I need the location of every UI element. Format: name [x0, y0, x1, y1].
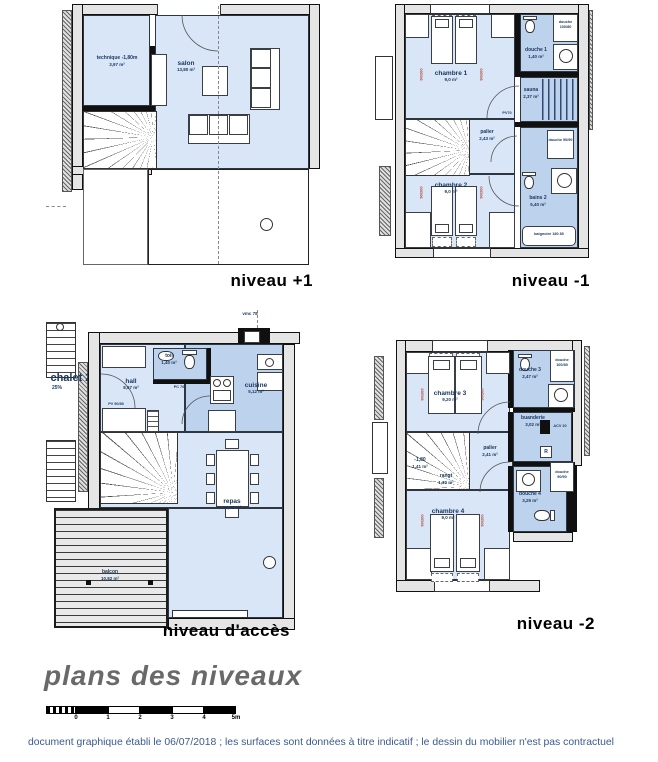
section-line [218, 6, 219, 264]
shelf [147, 410, 159, 432]
wc-bowl [525, 20, 535, 33]
room-label-cuisine: cuisine 5,12 m² [234, 382, 278, 395]
sheet-title: plans des niveaux [44, 660, 302, 692]
balcony-deck [54, 508, 168, 628]
room-area: 8,67 m² [114, 385, 148, 390]
wc-tank [550, 510, 555, 521]
bed-pillow [460, 360, 477, 370]
wall-thick [153, 380, 211, 384]
door-arc [480, 462, 510, 492]
scale-micro-segment [46, 706, 76, 714]
radiator-label: R [540, 449, 552, 455]
room-label-douche-3: douche 3 2,47 m² [512, 368, 548, 379]
wall-bottom [395, 248, 589, 258]
door-arc [478, 402, 510, 434]
scale-segment [140, 706, 172, 714]
wardrobe-x [405, 14, 429, 38]
wall-left [396, 340, 406, 592]
window [432, 340, 488, 352]
wall-right [309, 4, 320, 169]
scale-segment [204, 706, 236, 714]
bed-dimension: 90/200 [480, 388, 485, 400]
disclaimer-text: document graphique établi le 06/07/2018 … [28, 737, 638, 748]
wardrobe-x [406, 352, 430, 374]
room-label-chambre-4: chambre 4 9,0 m² [420, 508, 476, 521]
sofa-cushion [251, 68, 271, 88]
wc-bowl [534, 510, 550, 521]
balcony-ledge [372, 422, 388, 474]
wardrobe-x [406, 548, 432, 580]
room-area: 10,82 m² [88, 576, 132, 581]
room-area: 9,0 m² [423, 77, 479, 82]
burner [223, 379, 231, 387]
sofa-cushion [251, 49, 271, 68]
under-bed-storage [457, 573, 479, 582]
terrain-hatch [379, 166, 391, 236]
plan-niveau-plus-1: technique -1,80m 3,97 m² salon 13,80 m² [62, 4, 330, 278]
scale-tick: 4 [194, 715, 214, 721]
wardrobe-x [484, 548, 510, 580]
room-area: 3,97 m² [84, 62, 150, 67]
bed-dimension: 90/200 [479, 186, 484, 198]
room-area: 2,47 m² [512, 374, 548, 379]
level-label: -1,80 1,41 m² [406, 458, 434, 469]
section-line [46, 206, 66, 207]
room-label-chambre-1: chambre 1 9,0 m² [423, 70, 479, 83]
room-label-douche-4: douche 4 3,29 m² [512, 492, 548, 503]
door-arc [182, 396, 210, 424]
room-name: repas [216, 498, 248, 505]
room-area: 1,30 m² [430, 480, 462, 485]
sofa-cushion [189, 115, 208, 135]
washing-machine-drum [557, 173, 572, 188]
door-arc [489, 176, 519, 206]
scale-bar: 0 1 2 3 4 5m [46, 706, 238, 724]
scale-segment [76, 706, 108, 714]
fixture-label-shower: douche 90/90 [551, 470, 573, 479]
plan-title-niveau-moins-2: niveau -2 [480, 614, 595, 634]
wall-left [72, 4, 83, 190]
slope-value: 25% [52, 385, 62, 391]
wardrobe-x [405, 212, 431, 248]
sauna-benches [542, 79, 576, 120]
door-arc [182, 15, 218, 51]
bed-dimension: 90/200 [419, 68, 424, 80]
bed-pillow [459, 19, 473, 28]
terrain-hatch [62, 10, 72, 192]
balcony-ledge [375, 56, 393, 120]
wardrobe-x [102, 408, 146, 432]
wc-bowl [524, 176, 534, 189]
chair [250, 473, 259, 485]
deck-post [148, 580, 153, 585]
wall-top [395, 4, 585, 14]
sink-basin [265, 358, 274, 367]
bed-dimension: 90/200 [479, 68, 484, 80]
fixture-label-shower: douche 90/90 [548, 138, 573, 143]
room-area: 2,41 m² [472, 452, 508, 457]
room-label-balcon: balcon 10,82 m² [88, 570, 132, 581]
room-area: 16,82 m² [216, 505, 248, 510]
room-label-sauna: sauna 2,37 m² [519, 88, 543, 99]
room-area: 9,20 m² [422, 397, 478, 402]
room-area: 13,80 m² [158, 67, 214, 72]
chair [225, 439, 239, 449]
wall-thick [515, 122, 578, 127]
scale-tick: 2 [130, 715, 150, 721]
wardrobe-x [486, 352, 510, 374]
void-x-area [148, 169, 309, 265]
plan-niveau-moins-1: douche 100/80 douche 90/90 baignoire 180… [375, 4, 593, 266]
room-area: 5,40 m² [523, 202, 553, 207]
room-label-salon: salon 13,80 m² [158, 60, 214, 73]
slope-label: 25% [44, 386, 70, 392]
fixture-label-shower: douche 100/80 [554, 20, 577, 29]
room-name: hall [114, 378, 148, 385]
room-area: 1,40 m² [154, 360, 184, 365]
plan-title-niveau-acces: niveau d'accès [150, 621, 290, 641]
room-name: chambre 3 [422, 390, 478, 397]
open-area [83, 169, 148, 265]
wall-step [513, 532, 573, 542]
room-area: 3,29 m² [512, 498, 548, 503]
washing-machine-drum [559, 49, 573, 63]
room-label-rangt: rangt 1,30 m² [430, 474, 462, 485]
washing-machine-drum [554, 388, 568, 402]
stove-symbol [263, 556, 276, 569]
fixture-label-bathtub: baignoire 180 80 [527, 232, 571, 237]
room-area: 3,02 m² [512, 422, 554, 427]
wall-right [283, 344, 295, 630]
burner [213, 379, 221, 387]
stairs [100, 432, 178, 504]
room-label-hall: hall 8,67 m² [114, 378, 148, 391]
wardrobe-x [102, 346, 146, 368]
landing-marker [56, 323, 64, 331]
chair [206, 492, 215, 504]
bed-pillow [460, 558, 476, 568]
room-label-palier: palier 2,43 m² [471, 130, 503, 141]
room-name: cuisine [234, 382, 278, 389]
chair [206, 454, 215, 466]
under-bed-storage [432, 237, 452, 247]
window [433, 248, 491, 258]
level-area: 1,41 m² [406, 464, 434, 469]
room-area: 5,12 m² [234, 389, 278, 394]
shower-tray [547, 130, 574, 159]
wardrobe-x [491, 14, 515, 38]
room-name: chambre 1 [423, 70, 479, 77]
room-area: 2,37 m² [519, 94, 543, 99]
fixture-label-pv9080: PV 90/80 [100, 402, 132, 407]
room-label-repas: repas 16,82 m² [216, 498, 248, 511]
wall-left [395, 4, 405, 258]
terrain-hatch [589, 10, 593, 130]
wall-thick [513, 408, 575, 412]
scale-tick: 0 [66, 715, 86, 721]
scale-tick: 1 [98, 715, 118, 721]
room-label-palier: palier 2,41 m² [472, 446, 508, 457]
bed-dimension: 90/200 [480, 514, 485, 526]
wc-bowl [184, 355, 195, 369]
scale-segment [172, 706, 204, 714]
wall-right [578, 4, 589, 258]
fixture-label-pc70: PC 70 [166, 385, 192, 390]
entry-door-gap [157, 4, 221, 15]
wall-thick [515, 14, 520, 72]
terrain-hatch [374, 478, 384, 538]
bed-dimension: 90/200 [420, 388, 425, 400]
flue-label: vmc 78 [230, 311, 270, 316]
room-label-chambre-2: chambre 2 9,0 m² [423, 182, 479, 195]
room-salon [155, 15, 309, 169]
plan-title-niveau-moins-1: niveau -1 [470, 271, 590, 291]
room-name: douche 1 [521, 48, 551, 54]
plan-niveau-acces: chalet 25 25% vmc 78 [30, 322, 310, 642]
fixture-label-shower: douche 100/80 [551, 358, 573, 367]
room-label-chambre-3: chambre 3 9,20 m² [422, 390, 478, 403]
oven-door [213, 390, 231, 401]
scale-segment [108, 706, 140, 714]
scale-tick: 3 [162, 715, 182, 721]
terrain-hatch [374, 356, 384, 420]
room-area: 1,40 m² [521, 54, 551, 59]
floorplan-sheet: technique -1,80m 3,97 m² salon 13,80 m² … [0, 0, 658, 762]
under-bed-storage [456, 237, 476, 247]
kitchen-counter [208, 410, 236, 432]
bed-pillow [435, 19, 449, 28]
room-label-buanderie: buanderie 3,02 m² [512, 416, 554, 427]
wardrobe-x [489, 212, 515, 248]
stove-symbol [260, 218, 273, 231]
stairs [83, 111, 157, 169]
plan-title-niveau-plus-1: niveau +1 [195, 271, 313, 291]
sofa-cushion [229, 115, 248, 135]
bed-dimension: 90/200 [420, 514, 425, 526]
room-label-bains-2: bains 2 5,40 m² [523, 196, 553, 207]
washing-machine-drum [522, 473, 535, 486]
chimney-flue [244, 331, 260, 343]
chair [250, 454, 259, 466]
under-bed-storage [431, 573, 453, 582]
bed-pillow [433, 360, 450, 370]
room-area: 9,0 m² [423, 189, 479, 194]
stairs [405, 119, 470, 176]
room-name: chambre 2 [423, 182, 479, 189]
wall-left [88, 332, 100, 512]
room-label-technique: technique -1,80m 3,97 m² [84, 56, 150, 67]
room-label-douche-1: douche 1 1,40 m² [521, 48, 551, 59]
scale-tick: 5m [226, 715, 246, 721]
chair [206, 473, 215, 485]
fixture-label-pv70: PV70 [495, 111, 519, 116]
chair [250, 492, 259, 504]
room-area: 2,43 m² [471, 136, 503, 141]
balcony-door [172, 610, 248, 618]
wall-thick [515, 72, 578, 77]
window [430, 4, 490, 14]
bed-pillow [459, 224, 473, 233]
room-label-toil: toil 1,40 m² [154, 354, 184, 365]
room-name: salon [158, 60, 214, 67]
room-area: 9,0 m² [420, 515, 476, 520]
terrain-hatch [584, 346, 590, 456]
bed-pillow [435, 224, 449, 233]
room-name: chambre 4 [420, 508, 476, 515]
bed-dimension: 90/200 [419, 186, 424, 198]
bed-pillow [434, 558, 450, 568]
sofa-cushion [251, 88, 271, 108]
exterior-stairs [46, 440, 76, 502]
plan-niveau-moins-2: douche 100/80 ACV 20 R douche 90/90 cham… [372, 322, 600, 622]
